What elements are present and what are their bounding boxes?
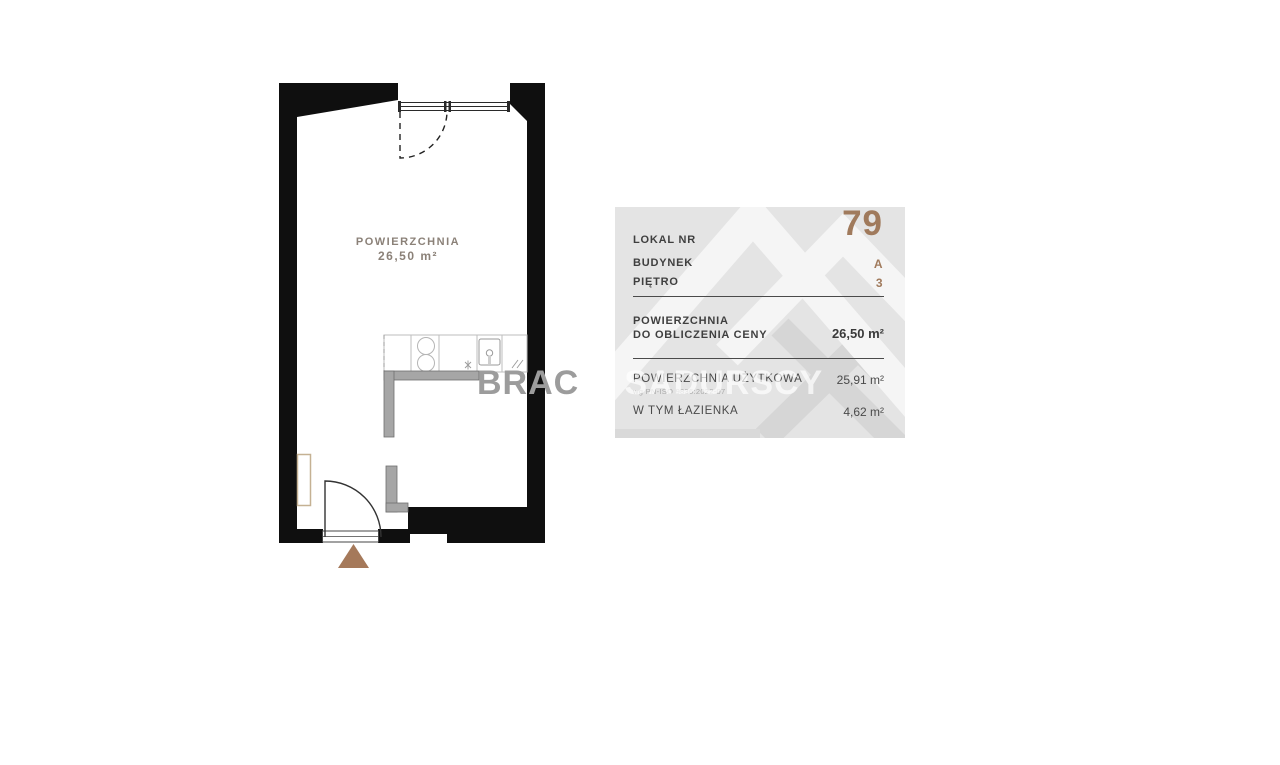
walls — [279, 83, 545, 543]
price-area-value: 26,50 m² — [832, 326, 884, 341]
wall-top-left — [279, 83, 398, 117]
wall-left — [279, 83, 297, 543]
sink-faucet — [488, 356, 491, 364]
window-mullion — [507, 101, 510, 112]
unit-label: LOKAL NR — [633, 234, 696, 246]
usable-area-note: wg PN-ISO 9836:2022-07 — [633, 387, 725, 396]
wall-bottom-mid — [378, 529, 410, 543]
window-mullion — [449, 101, 452, 112]
window — [398, 101, 510, 112]
price-area-label-line2: DO OBLICZENIA CENY — [633, 329, 767, 341]
building-value: A — [874, 257, 883, 271]
usable-area-value: 25,91 m² — [837, 373, 884, 387]
wall-bottom-left — [279, 529, 323, 543]
wall-right — [527, 104, 545, 543]
entrance-door — [323, 481, 382, 542]
wall-bottom-jog — [408, 507, 447, 534]
building-label: BUDYNEK — [633, 257, 693, 269]
window-mullion — [398, 101, 401, 112]
room-area-value: 26,50 m² — [378, 249, 438, 263]
wall-bottom-right — [447, 507, 545, 543]
floor-value: 3 — [876, 276, 883, 290]
entry-partition-foot — [386, 503, 408, 512]
floor-label: PIĘTRO — [633, 276, 679, 288]
bathroom-area-value: 4,62 m² — [843, 405, 884, 419]
bathroom-area-label: W TYM ŁAZIENKA — [633, 405, 738, 417]
kitchen-partition-horizontal — [384, 371, 479, 380]
apartment-card: POWIERZCHNIA 26,50 m² 79 LOKAL NR BUDYNE… — [0, 0, 1280, 765]
radiator — [298, 455, 311, 506]
entrance-arrow — [338, 544, 369, 568]
info-panel: 79 LOKAL NR BUDYNEK A PIĘTRO 3 POWIERZCH… — [615, 207, 905, 438]
entrance-door-swing — [325, 481, 381, 537]
unit-number: 79 — [842, 207, 883, 241]
divider — [633, 296, 884, 297]
kitchen-partition-vertical — [384, 371, 394, 437]
window-mullion — [444, 101, 447, 112]
divider — [633, 358, 884, 359]
usable-area-label: POWIERZCHNIA UŻYTKOWA — [633, 373, 802, 385]
price-area-label-line1: POWIERZCHNIA — [633, 315, 729, 327]
balcony-door-swing — [400, 111, 447, 158]
room-area-label: POWIERZCHNIA — [356, 236, 460, 248]
kitchen-counter — [384, 335, 527, 372]
partition-walls — [384, 371, 479, 512]
